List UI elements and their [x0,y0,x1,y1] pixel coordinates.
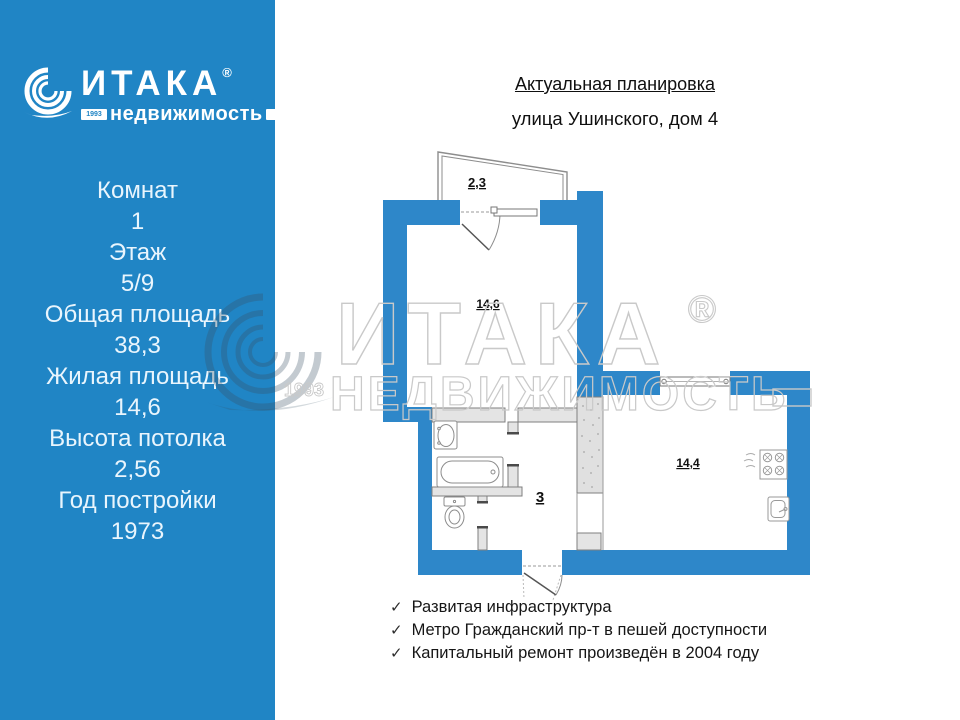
kitchen-window [660,377,730,386]
entrance-door [523,566,562,600]
logo-bar-right [266,109,283,120]
check-icon: ✓ [390,620,403,642]
toilet [444,497,465,528]
plan-header: Актуальная планировка улица Ушинского, д… [455,74,775,130]
real-estate-flyer: ИТАКА® 1993 недвижимость Комнат 1 Этаж 5… [0,0,960,720]
stat-value: 2,56 [0,454,275,485]
feature-item: ✓ Развитая инфраструктура [390,596,767,619]
stat-value: 1973 [0,516,275,547]
kitchen-sink [768,497,789,521]
hallway-label: 3 [536,489,544,506]
registered-mark: ® [222,65,232,80]
door-gap-caps [477,432,519,529]
stat-value: 14,6 [0,392,275,423]
stat-label: Год постройки [0,485,275,516]
plan-title: Актуальная планировка [455,74,775,95]
balcony-label: 2,3 [468,175,486,190]
kitchen-label: 14,4 [676,456,700,470]
stove [760,450,787,479]
stat-value: 5/9 [0,268,275,299]
logo-brand: ИТАКА® [81,66,283,101]
ventilation-shaft [577,397,603,550]
itaka-logo: ИТАКА® 1993 недвижимость [22,66,283,124]
bathtub [437,457,503,487]
stat-value: 1 [0,206,275,237]
feature-text: Капитальный ремонт произведён в 2004 год… [412,642,760,664]
check-icon: ✓ [390,643,403,665]
sidebar: ИТАКА® 1993 недвижимость Комнат 1 Этаж 5… [0,0,275,720]
plan-address: улица Ушинского, дом 4 [455,108,775,130]
stat-label: Общая площадь [0,299,275,330]
steam-icon [744,454,755,468]
feature-text: Развитая инфраструктура [412,596,612,618]
watermark-year: 1993 [284,380,324,400]
features-list: ✓ Развитая инфраструктура ✓ Метро Гражда… [390,596,767,665]
stat-label: Комнат [0,175,275,206]
stat-label: Высота потолка [0,423,275,454]
living-room-label: 14,6 [476,297,500,311]
feature-item: ✓ Метро Гражданский пр-т в пешей доступн… [390,619,767,642]
watermark-registered: ® [688,289,716,331]
logo-bar-left: 1993 [81,109,107,120]
logo-year: 1993 [86,111,102,118]
bathroom-sink [434,421,457,449]
check-icon: ✓ [390,597,403,619]
stat-label: Этаж [0,237,275,268]
feature-text: Метро Гражданский пр-т в пешей доступнос… [412,619,768,641]
watermark-subtitle: НЕДВИЖИМОСТЬ [330,368,789,421]
property-stats: Комнат 1 Этаж 5/9 Общая площадь 38,3 Жил… [0,175,275,547]
interior-partitions [432,408,601,550]
watermark-brand: ИТАКА [336,284,668,383]
outer-walls [383,191,810,575]
wave-spiral-icon [22,66,74,124]
balcony [438,152,567,202]
feature-item: ✓ Капитальный ремонт произведён в 2004 г… [390,642,767,665]
stat-label: Жилая площадь [0,361,275,392]
logo-subtitle: недвижимость [110,104,263,124]
stat-value: 38,3 [0,330,275,361]
watermark: 1993 ИТАКА ® НЕДВИЖИМОСТЬ [206,284,811,421]
balcony-door-and-window [461,207,537,250]
logo-brand-text: ИТАКА [81,64,222,103]
watermark-bar [773,389,811,406]
